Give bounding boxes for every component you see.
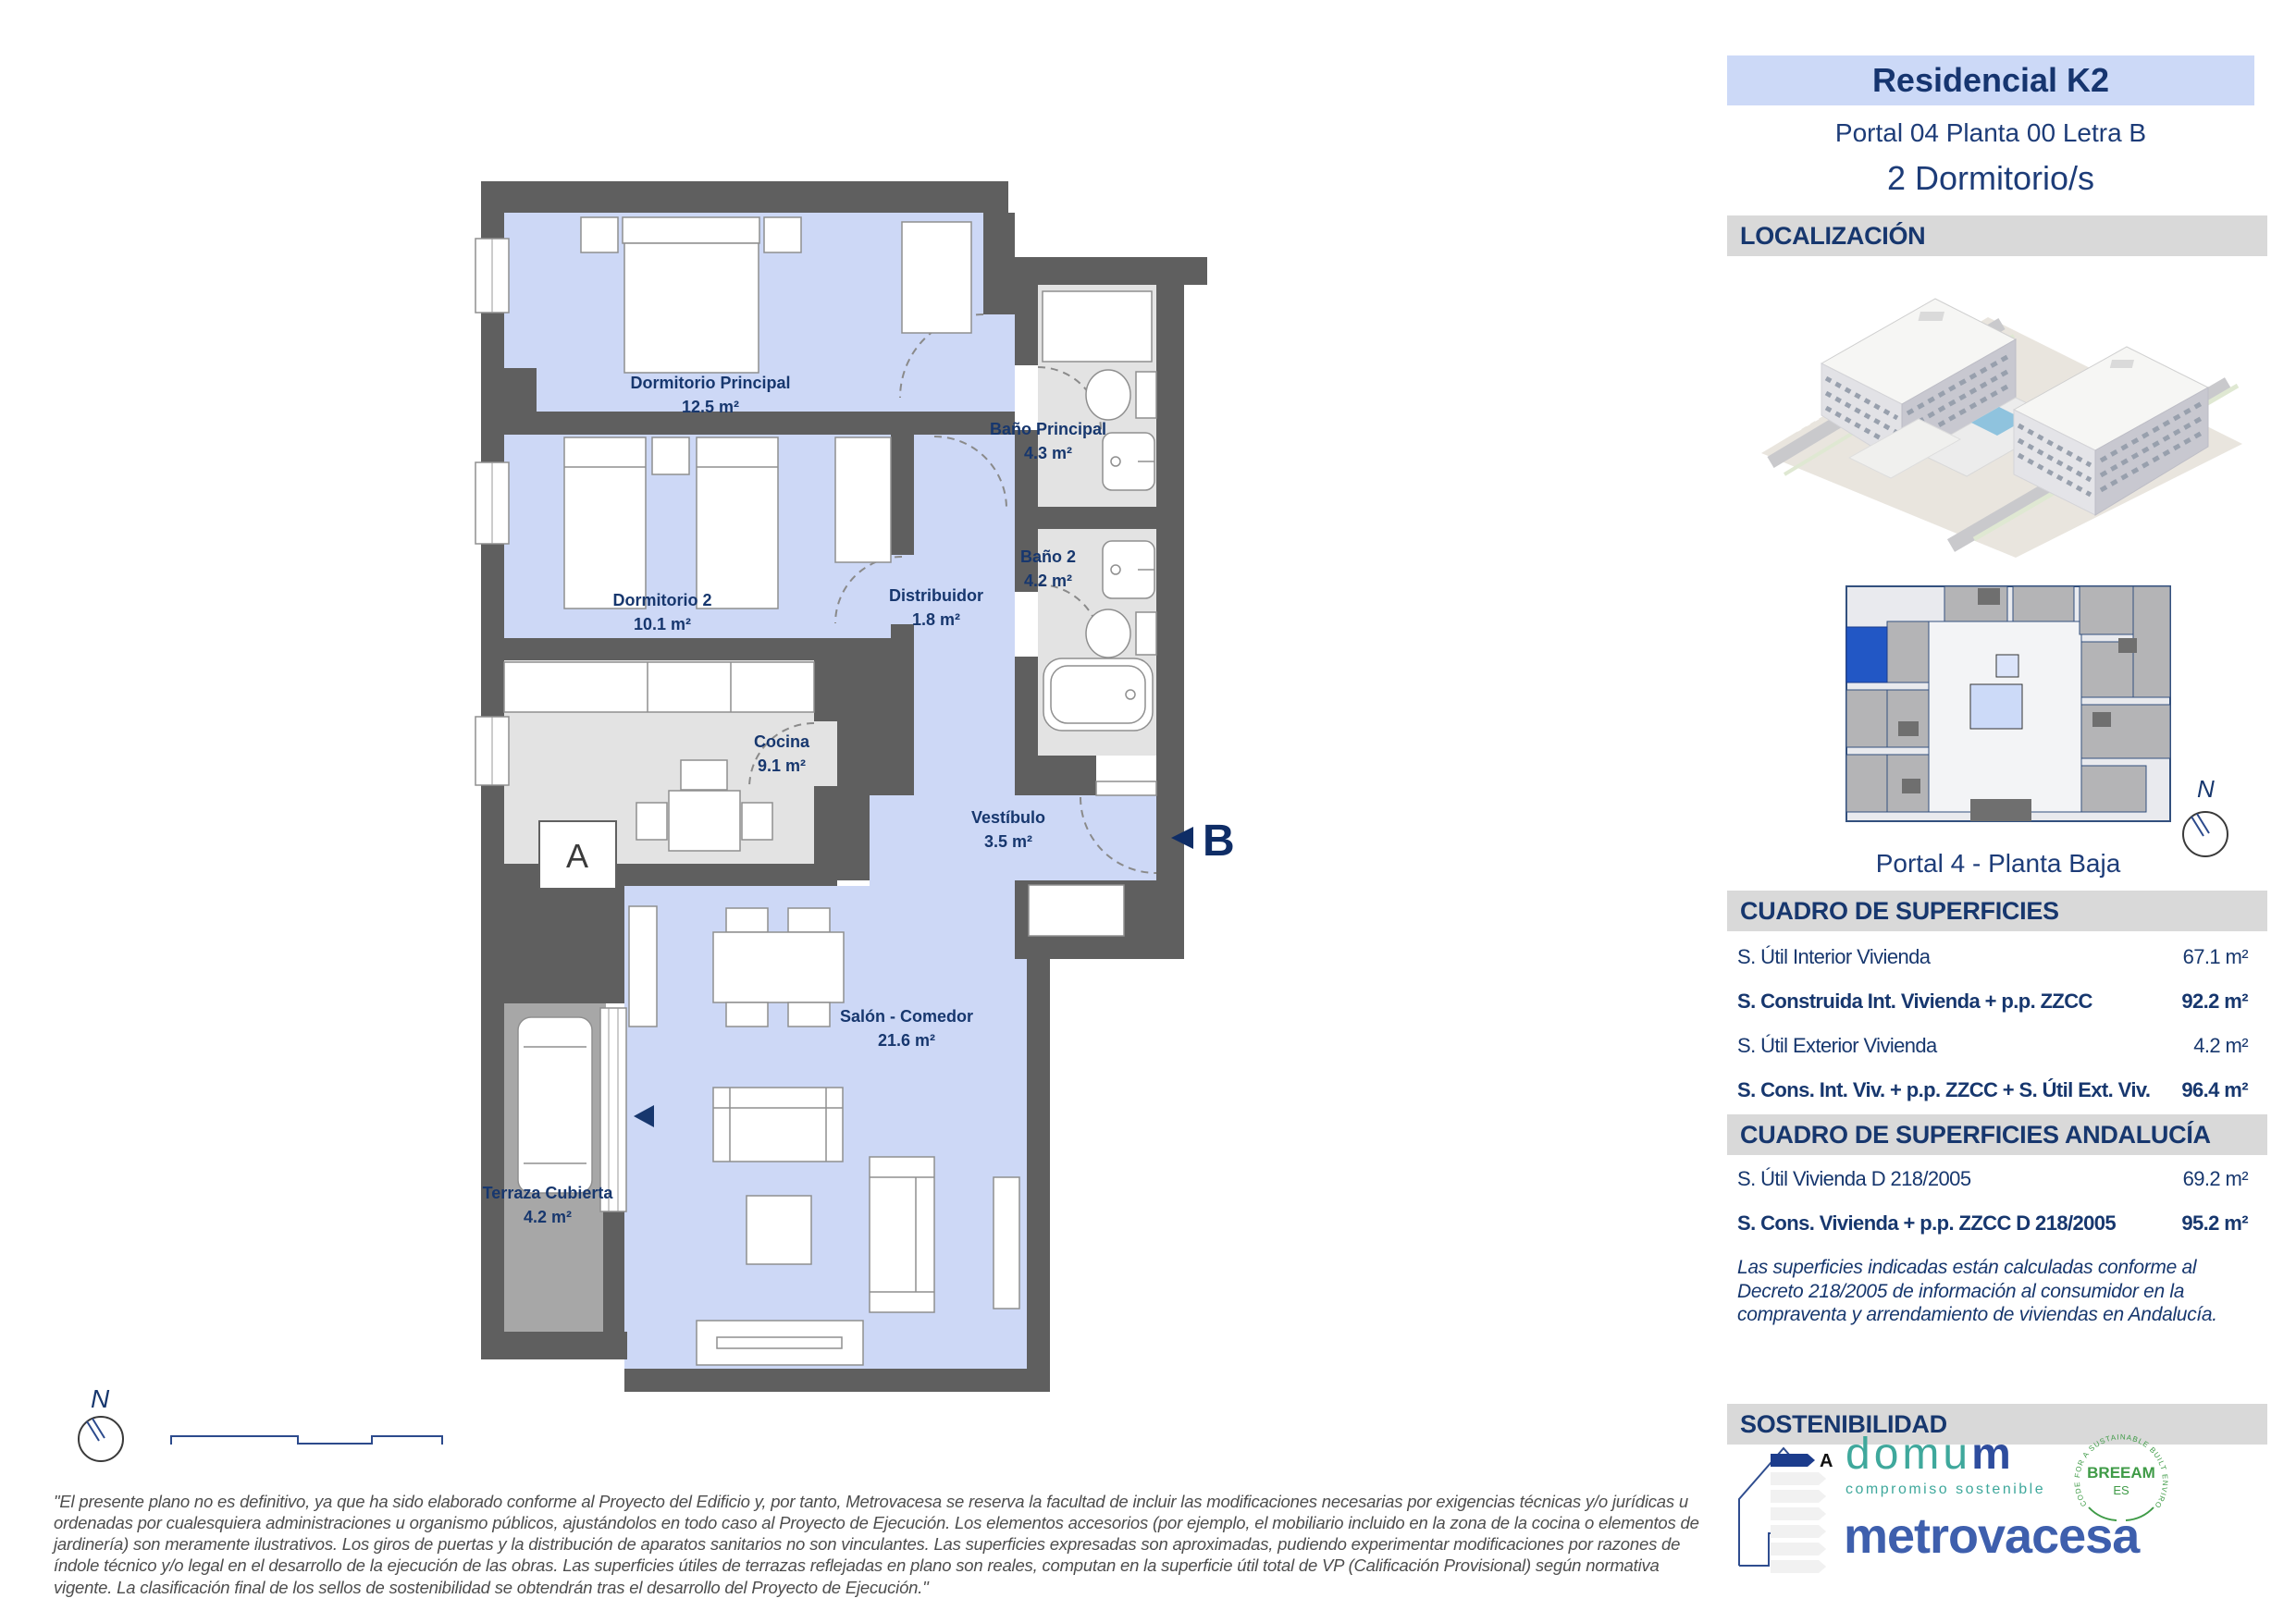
breeam-name: BREEAM	[2087, 1464, 2155, 1482]
row-value: 95.2 m²	[2181, 1211, 2248, 1236]
table-row: S. Útil Exterior Vivienda 4.2 m²	[1737, 1034, 2248, 1078]
floorplan-sheet: A B Dormitorio Principal 12.5 m² Dormito…	[0, 0, 2296, 1623]
plan-compass-icon: N	[79, 1384, 123, 1461]
label-dorm-2: Dormitorio 2	[612, 591, 711, 609]
table-row: S. Construida Int. Vivienda + p.p. ZZCC …	[1737, 990, 2248, 1034]
label-dorm-principal: Dormitorio Principal	[630, 374, 790, 392]
energy-rating-icon: A	[1728, 1413, 1839, 1578]
label-cocina-area: 9.1 m²	[758, 756, 806, 775]
table-row: S. Útil Vivienda D 218/2005 69.2 m²	[1737, 1167, 2248, 1211]
label-salon: Salón - Comedor	[840, 1007, 973, 1026]
key-plan-caption: Portal 4 - Planta Baja	[1795, 849, 2202, 879]
key-plan-pool	[1970, 684, 2022, 729]
section-marker-a: A	[566, 837, 588, 875]
label-dorm-2-area: 10.1 m²	[634, 615, 691, 633]
disclaimer-text: "El presente plano no es definitivo, ya …	[54, 1491, 1717, 1598]
label-salon-area: 21.6 m²	[878, 1031, 935, 1050]
keyplan-compass-icon: N	[2177, 775, 2234, 867]
superficies-table: S. Útil Interior Vivienda 67.1 m² S. Con…	[1737, 945, 2248, 1123]
label-dorm-principal-area: 12.5 m²	[682, 398, 739, 416]
row-label: S. Útil Vivienda D 218/2005	[1737, 1167, 1970, 1191]
label-distribuidor-area: 1.8 m²	[912, 610, 960, 629]
domum-word-right: m	[1971, 1430, 2015, 1479]
label-distribuidor: Distribuidor	[889, 586, 983, 605]
row-label: S. Cons. Vivienda + p.p. ZZCC D 218/2005	[1737, 1211, 2116, 1236]
section-header-andalucia: CUADRO DE SUPERFICIES ANDALUCÍA	[1727, 1114, 2267, 1155]
domum-word-left: domu	[1845, 1430, 1971, 1479]
project-title: Residencial K2	[1872, 61, 2109, 100]
row-value: 67.1 m²	[2183, 945, 2248, 969]
row-value: 69.2 m²	[2183, 1167, 2248, 1191]
label-bano-principal-area: 4.3 m²	[1024, 444, 1072, 462]
row-label: S. Útil Exterior Vivienda	[1737, 1034, 1937, 1058]
andalucia-table: S. Útil Vivienda D 218/2005 69.2 m² S. C…	[1737, 1167, 2248, 1256]
entry-door-leaf	[1096, 781, 1156, 795]
unit-line: Portal 04 Planta 00 Letra B	[1727, 118, 2254, 148]
domum-tagline: compromiso sostenible	[1845, 1482, 2045, 1498]
section-header-localizacion: LOCALIZACIÓN	[1727, 215, 2267, 256]
door-gap-cocina	[814, 721, 837, 786]
key-plan	[1841, 581, 2176, 827]
label-bano-2-area: 4.2 m²	[1024, 572, 1072, 590]
label-terraza-area: 4.2 m²	[524, 1208, 572, 1226]
andalucia-note: Las superficies indicadas están calculad…	[1737, 1256, 2255, 1327]
domum-logo: domum compromiso sostenible	[1845, 1429, 2045, 1498]
label-vestibulo-area: 3.5 m²	[984, 832, 1032, 851]
label-terraza: Terraza Cubierta	[483, 1184, 614, 1202]
furniture-terraza	[518, 1017, 592, 1193]
label-bano-2: Baño 2	[1020, 547, 1076, 566]
keyplan-compass-n: N	[2197, 775, 2215, 803]
table-row: S. Útil Interior Vivienda 67.1 m²	[1737, 945, 2248, 990]
row-label: S. Construida Int. Vivienda + p.p. ZZCC	[1737, 990, 2092, 1014]
facade-outline-sketch	[171, 1436, 442, 1445]
label-cocina: Cocina	[754, 732, 810, 751]
row-value: 4.2 m²	[2193, 1034, 2248, 1058]
row-label: S. Útil Interior Vivienda	[1737, 945, 1930, 969]
floor-plan: A B Dormitorio Principal 12.5 m² Dormito…	[0, 0, 1721, 1480]
entry-marker-b: B	[1203, 817, 1235, 866]
label-bano-principal: Baño Principal	[990, 420, 1106, 438]
energy-rating-letter: A	[1820, 1451, 1833, 1471]
key-plan-pool-annex	[1996, 655, 2018, 677]
table-row: S. Cons. Vivienda + p.p. ZZCC D 218/2005…	[1737, 1211, 2248, 1256]
storage-inset	[1029, 885, 1124, 936]
plan-compass-n: N	[91, 1384, 110, 1413]
row-value: 92.2 m²	[2181, 990, 2248, 1014]
page-title: Residencial K2	[1727, 55, 2254, 105]
breeam-sub: ES	[2113, 1483, 2129, 1497]
metrovacesa-logo: metrovacesa	[1844, 1507, 2139, 1565]
row-value: 96.4 m²	[2181, 1078, 2248, 1102]
localizacion-render	[1737, 264, 2248, 559]
key-plan-highlight-unit	[1846, 627, 1887, 682]
section-header-superficies: CUADRO DE SUPERFICIES	[1727, 891, 2267, 931]
label-vestibulo: Vestíbulo	[971, 808, 1045, 827]
row-label: S. Cons. Int. Viv. + p.p. ZZCC + S. Útil…	[1737, 1078, 2150, 1102]
bedrooms-line: 2 Dormitorio/s	[1727, 159, 2254, 198]
